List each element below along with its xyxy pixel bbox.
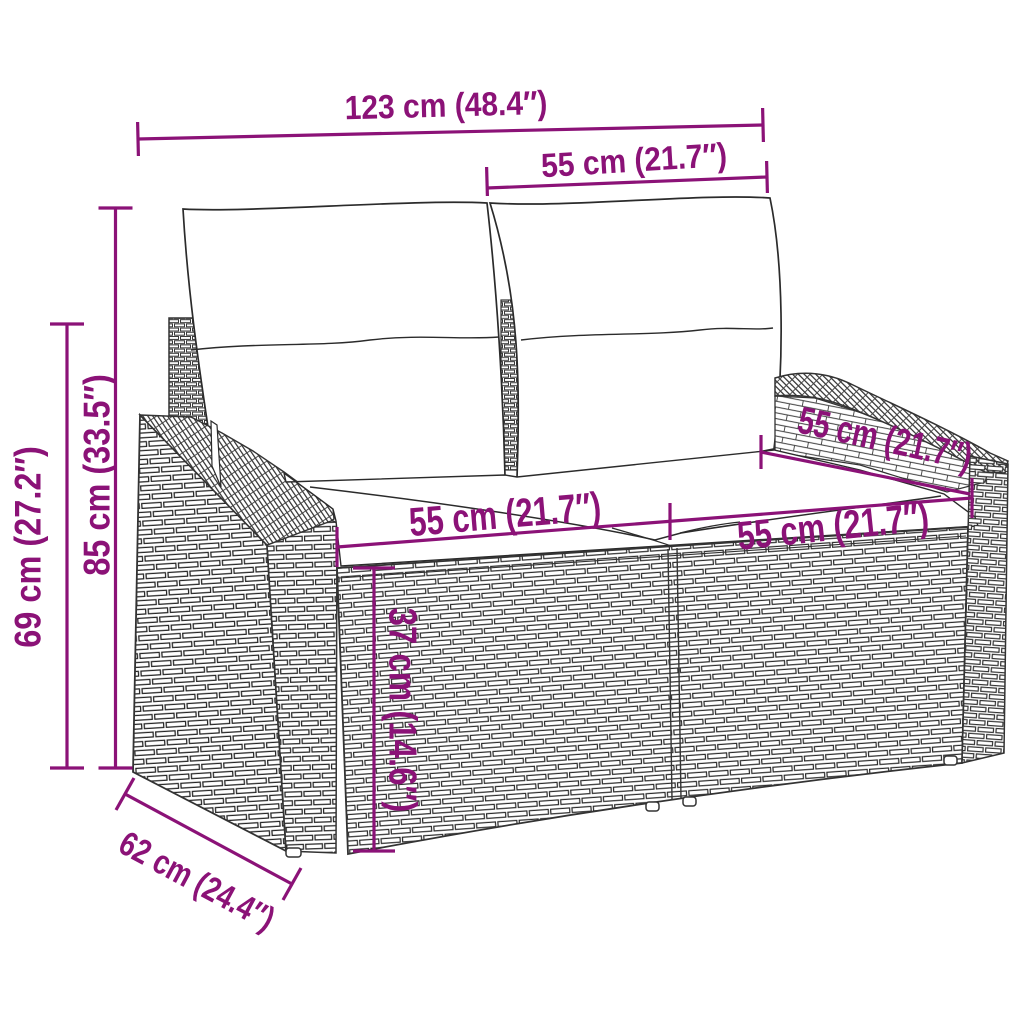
svg-text:69 cm (27.2″): 69 cm (27.2″) bbox=[7, 446, 49, 648]
svg-text:123 cm (48.4″): 123 cm (48.4″) bbox=[344, 83, 548, 126]
svg-text:85 cm (33.5″): 85 cm (33.5″) bbox=[76, 374, 118, 576]
svg-text:37 cm (14.6″): 37 cm (14.6″) bbox=[381, 608, 425, 813]
